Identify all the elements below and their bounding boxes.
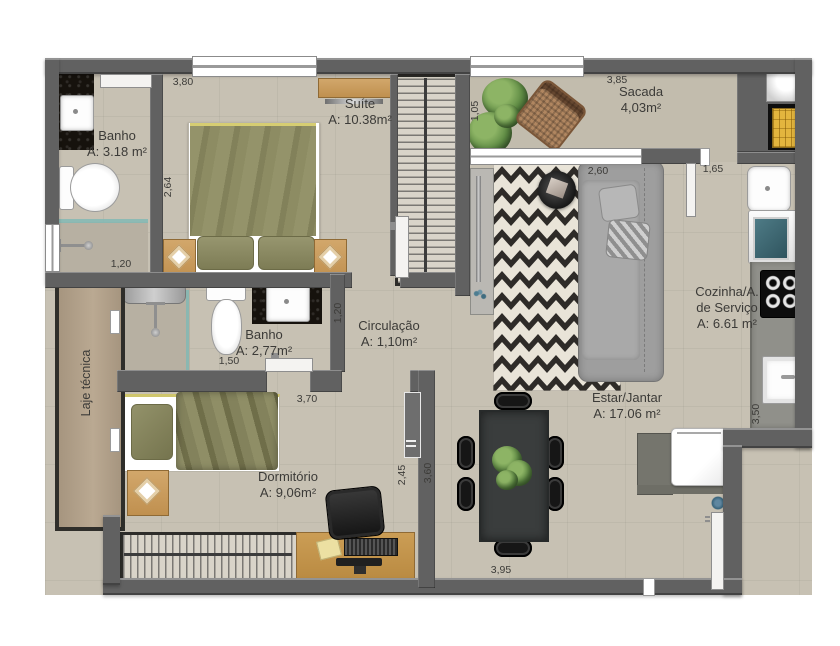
shower-head [84,241,93,250]
room-area: 4,03m² [619,100,663,116]
keyboard-icon [344,538,398,556]
bed-pillow [197,236,254,270]
bed-blanket [190,123,316,236]
faucet-icon [781,375,795,379]
room-area: A: 1,10m² [358,334,419,350]
room-area: A: 17.06 m² [592,406,662,422]
room-label-sacada: Sacada 4,03m² [619,84,663,116]
room-name: Dormitório [258,469,318,485]
room-label-estar: Estar/Jantar A: 17.06 m² [592,390,662,422]
sofa-pillow-chevron [605,219,651,261]
faucet-icon [765,186,770,191]
room-name: Banho [236,327,292,343]
wall [455,74,470,296]
fridge-icon [671,428,729,486]
bed-blanket [176,392,278,470]
wall [640,148,702,164]
shower-icon [60,244,86,247]
wall [795,58,812,448]
room-name: Sacada [619,84,663,100]
room-name: Circulação [358,318,419,334]
faucet-icon [73,109,78,114]
sliding-door-sacada [470,148,642,165]
dining-chair-icon [457,436,475,470]
dim-estar-depth: 3,60 [422,463,434,483]
door-jamb [643,578,655,596]
office-chair [325,485,386,541]
room-area: A: 9,06m² [258,485,318,501]
room-label-circulacao: Circulação A: 1,10m² [358,318,419,350]
dim-circulacao-width: 1,20 [332,303,344,323]
monitor-icon [336,558,382,566]
toilet-icon [70,163,120,212]
dim-banho-social-width: 1,50 [219,355,239,367]
wall [117,370,267,392]
room-name: Banho [87,128,147,144]
tv-icon [476,176,481,282]
wardrobe-rod [124,553,292,556]
dim-estar-width: 3,95 [491,564,511,576]
window [470,56,584,77]
bed-pillow [258,236,315,270]
sofa-seam [644,168,645,372]
door-handle [406,445,416,447]
room-name: Estar/Jantar [592,390,662,406]
dim-dormitorio-door: 2,45 [396,465,408,485]
door-leaf-entrance [711,512,724,590]
wall [103,515,120,585]
door-leaf-sacada [686,163,696,217]
room-area: A: 3.18 m² [87,144,147,160]
laje-vent [110,428,120,452]
door-leaf-suite-bath [100,74,152,88]
room-area: A: 6.61 m² [695,316,759,332]
floor-shower-suite-bath [58,222,148,272]
dim-suite-depth: 2,64 [162,177,174,197]
door-handle [705,520,710,522]
shower-icon [154,302,157,328]
room-name: Suíte [328,96,392,112]
dresser [318,78,394,98]
dim-sacada-width: 3,85 [607,74,627,86]
room-area: A: 2,77m² [236,343,292,359]
dim-dormitorio-width: 3,70 [297,393,317,405]
room-label-laje: Laje técnica [79,350,93,417]
door-leaf-banho [265,358,313,372]
dining-chair-icon [494,392,532,410]
table-plant-icon [496,470,518,490]
fridge-handle [677,432,721,434]
dining-chair-icon [457,477,475,511]
dim-banho-suite-width: 1,20 [111,258,131,270]
wardrobe-rod [424,78,427,276]
door-leaf-dormitorio [404,392,421,458]
sofa-pillow [598,184,640,223]
laje-vent [110,310,120,334]
dim-cozinha-depth: 3,50 [750,404,762,424]
floor-plan: Banho A: 3.18 m² Suíte A: 10.38m² Sacada… [0,0,840,646]
window [192,56,317,77]
wall [45,272,352,288]
room-name: Cozinha/A. [695,284,759,300]
door-leaf-suite [395,216,409,278]
dim-sacada-passage: 1,65 [703,163,723,175]
decor-flowers-icon [471,288,489,302]
wall [310,370,342,392]
room-label-dormitorio: Dormitório A: 9,06m² [258,469,318,501]
room-label-banho-suite: Banho A: 3.18 m² [87,128,147,160]
room-name: de Serviço [695,300,759,316]
room-label-suite: Suíte A: 10.38m² [328,96,392,128]
shower-glass [186,290,189,370]
room-area: A: 10.38m² [328,112,392,128]
door-handle [705,516,710,518]
bed-pillow [131,404,173,460]
dim-sacada-depth: 1,05 [469,101,481,121]
door-handle [406,440,416,442]
wall [723,445,742,595]
shower-head [151,328,160,337]
dim-suite-width: 3,80 [173,76,193,88]
room-label-banho-social: Banho A: 2,77m² [236,327,292,359]
shower-glass [56,219,148,223]
faucet-icon [284,299,289,304]
dim-estar-window: 2,60 [588,165,608,177]
door-handle [390,222,395,230]
monitor-stand [354,566,366,574]
room-label-cozinha: Cozinha/A. de Serviço A: 6.61 m² [695,284,759,332]
window [45,224,60,272]
wall [45,58,812,74]
shower-arm [146,302,165,305]
washer-door [753,217,789,260]
